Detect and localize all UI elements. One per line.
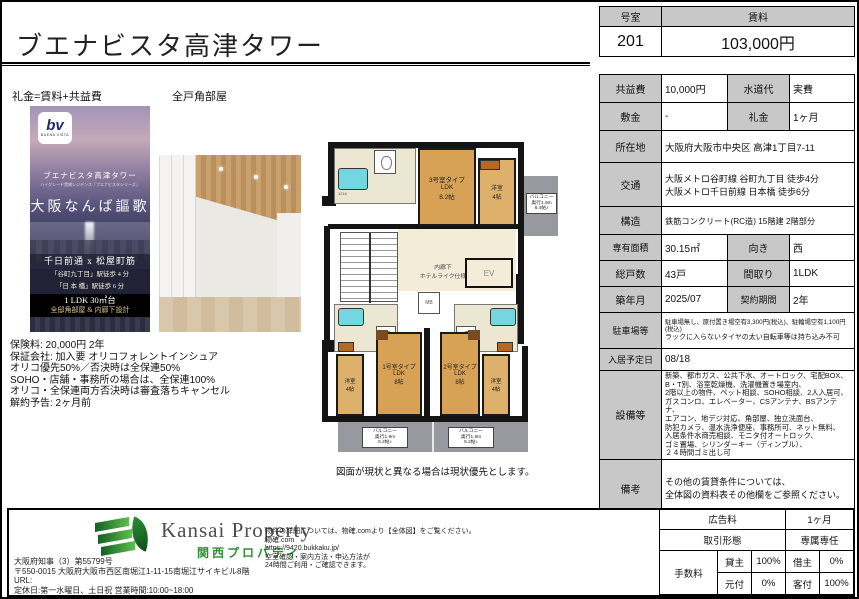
kozo-label: 構造: [600, 207, 662, 235]
poster-subtitle: ハイグレード賃貸レジデンス「ブエナビスタシリーズ」: [30, 182, 150, 188]
bukkaku-notice: 物件の詳細については、物確.comより【全体図】をご覧ください。 物確.com …: [265, 528, 515, 571]
notice-line: 24時間ご利用・ご確認できます。: [265, 562, 515, 571]
buena-vista-logo: bv BUENA VISTA: [38, 112, 72, 144]
listing-agent-value: 0%: [752, 573, 786, 595]
kotsu-label: 交通: [600, 163, 662, 207]
toilet-icon: [381, 156, 392, 170]
kyoekihi-value: 10,000円: [662, 75, 728, 103]
parking-line2: ラックに入らないタイヤの太い自転車等は持ち込み不可: [665, 334, 851, 342]
stair-divider: [369, 233, 371, 303]
rent-value: 103,000円: [662, 27, 855, 57]
wall: [322, 346, 328, 422]
terms-block: 保険料: 20,000円 2年 保証会社: 加入要 オリコフォレントインシュア …: [10, 340, 230, 409]
kosu-label: 総戸数: [600, 261, 662, 287]
rent-label: 賃料: [662, 7, 855, 27]
biko-line1: その他の賃貸条件については、: [665, 475, 851, 488]
muki-label: 向き: [728, 235, 790, 261]
floorplan-caption: 図面が現状と異なる場合は現状優先とします。: [336, 464, 535, 478]
wall: [522, 346, 528, 422]
lessor-value: 100%: [752, 551, 786, 573]
room-yoshitsu-right: 洋室 4帖: [482, 354, 510, 416]
ceiling-light: [219, 167, 223, 171]
property-flyer: ブエナビスタ高津タワー 号室 賃料 201 103,000円 礼金=賃料+共益費…: [0, 0, 859, 599]
terms-line: 解約予告: 2ヶ月前: [10, 398, 230, 410]
room-rent-table: 号室 賃料 201 103,000円: [599, 6, 855, 57]
bathtub-bottom-right: [490, 308, 516, 326]
terms-line: 保険料: 20,000円 2年: [10, 340, 230, 352]
terms-line: SOHO・店舗・事務所の場合は、全保連100%: [10, 375, 230, 387]
bv-logo-subtext: BUENA VISTA: [41, 133, 69, 137]
listing-agent-label: 元付: [718, 573, 752, 595]
kotsu-value: 大阪メトロ谷町線 谷町九丁目 徒歩4分 大阪メトロ千日前線 日本橋 徒歩6分: [662, 163, 855, 207]
lessor-label: 貸主: [718, 551, 752, 573]
keiyaku-label: 契約期間: [728, 287, 790, 313]
poster-access-text: 「谷町九丁目」駅徒歩 4 分 「日 本 橋」駅徒歩 6 分: [30, 269, 150, 294]
balcony-bottom: バルコニー 奥行1.9m 5.2帖♪ バルコニー 奥行1.9m 5.2帖♪: [338, 422, 528, 452]
entrance-door-right: [468, 330, 480, 340]
madori-label: 間取り: [728, 261, 790, 287]
nyukyo-label: 入居予定日: [600, 349, 662, 371]
reikin-note: 礼金=賃料+共益費: [12, 88, 102, 104]
entrance-door-left: [376, 330, 388, 340]
poster-streets-text: 千日前通 x 松屋町筋: [30, 254, 150, 269]
footer: Kansai Property 関西プロパティ 大阪府知事（3）第55799号 …: [7, 508, 855, 597]
meter-box: MB: [418, 292, 440, 314]
room-number-value: 201: [600, 27, 662, 57]
chikunengetsu-label: 築年月: [600, 287, 662, 313]
interior-photo: [159, 155, 301, 332]
nyukyo-value: 08/18: [662, 349, 855, 371]
terms-line: オリコ・全保連両方否決時は審査落ちキャンセル: [10, 386, 230, 398]
madori-value: 1LDK: [790, 261, 855, 287]
suidodai-label: 水道代: [728, 75, 790, 103]
suidodai-value: 実費: [790, 75, 855, 103]
parking-label: 駐車場等: [600, 313, 662, 349]
stairwell: [340, 232, 398, 302]
poster-building-name: ブエナビスタ高津タワー: [30, 170, 150, 181]
menseki-value: 30.15㎡: [662, 235, 728, 261]
bathtub-size-label: 1216: [338, 191, 347, 196]
closet-bottom-left: [338, 342, 354, 352]
lessee-value: 0%: [820, 551, 854, 573]
kotsu-line1: 大阪メトロ谷町線 谷町九丁目 徒歩4分: [665, 172, 851, 185]
ceiling-light: [284, 185, 288, 189]
bathtub-bottom-left: [338, 308, 364, 326]
kosu-value: 43戸: [662, 261, 728, 287]
kansai-property-logo: [95, 516, 155, 558]
shozaichi-value: 大阪府大阪市中央区 高津1丁目7-11: [662, 131, 855, 163]
poster-access-line2: 「日 本 橋」駅徒歩 6 分: [30, 281, 150, 293]
poster-spec-line1: 1 LDK 30㎡台: [30, 294, 150, 306]
shikikin-label: 敷金: [600, 103, 662, 131]
reikin-label: 礼金: [728, 103, 790, 131]
balcony-right: バルコニー 奥行1.9m 6.4帖♪: [524, 176, 558, 236]
poster-access-line1: 「谷町九丁目」駅徒歩 4 分: [30, 269, 150, 281]
room-number-label: 号室: [600, 7, 662, 27]
notice-line: https://9420.bukkaku.jp/: [265, 545, 515, 554]
kozo-value: 鉄筋コンクリート(RC造) 15階建 2階部分: [662, 207, 855, 235]
company-hours: 定休日:第一水曜日、土日祝 営業時間:10:00~18:00: [14, 586, 249, 596]
shikikin-value: -: [662, 103, 728, 131]
company-url: URL:: [14, 576, 249, 586]
setsubi-label: 設備等: [600, 371, 662, 460]
corner-room-note: 全戸角部屋: [172, 88, 227, 104]
room-unit3-ldk: 3号室タイプ LDK 8.2帖: [418, 148, 476, 226]
kyoekihi-label: 共益費: [600, 75, 662, 103]
setsubi-line: ２４時間ゴミ出し可: [665, 449, 851, 458]
setsubi-value: 新築、都市ガス、公共下水、オートロック、宅配BOX、 B・T別、浴室乾燥機、洗濯…: [662, 371, 855, 460]
parking-line1: 駐車場無し、原付置き場空有3,300円(税込)、駐輪場空有1,100円(税込): [665, 319, 851, 334]
photo-side-wall: [277, 213, 301, 297]
balcony-bottom2-label: バルコニー 奥行1.9m 5.2帖♪: [448, 427, 494, 448]
building-poster-image: bv BUENA VISTA ブエナビスタ高津タワー ハイグレード賃貸レジデンス…: [30, 106, 150, 332]
elevator: EV: [465, 258, 513, 288]
photo-wood-floor: [159, 297, 301, 332]
poster-spec-line2: 全邸角部屋 & 内廊下設計: [30, 306, 150, 315]
chikunengetsu-value: 2025/07: [662, 287, 728, 313]
parking-value: 駐車場無し、原付置き場空有3,300円(税込)、駐輪場空有1,100円(税込) …: [662, 313, 855, 349]
poster-catchcopy: 大阪なんば謳歌: [30, 196, 150, 216]
poster-bottom-skyline: [30, 317, 150, 332]
room-unit2-ldk: 2号室タイプ LDK 8帖: [440, 332, 480, 416]
setsubi-line: ガスコンロ、エレベーター、CSアンテナ、BSアンテナ、: [665, 398, 851, 415]
company-license: 大阪府知事（3）第55799号: [14, 557, 249, 567]
floor-plan: 1216 3号室タイプ LDK 8.2帖 洋室 4帖 バルコニー 奥行1.9m …: [312, 140, 562, 458]
bathtub-top: [338, 168, 368, 190]
wall: [324, 226, 330, 346]
logo-bar: [101, 541, 135, 556]
notice-line: 物確.com: [265, 537, 515, 546]
reikin-value: 1ヶ月: [790, 103, 855, 131]
ad-fee-value: 1ヶ月: [786, 509, 854, 530]
ceiling-light: [254, 175, 258, 179]
menseki-label: 専有面積: [600, 235, 662, 261]
deal-type-value: 専属専任: [786, 530, 854, 551]
biko-line2: 全体図の資料表その他欄をご参照ください。: [665, 488, 851, 501]
room-yoshitsu-left: 洋室 4帖: [336, 354, 364, 416]
tenant-agent-label: 客付: [786, 573, 820, 595]
closet-top: [480, 160, 500, 170]
commission-label: 手数料: [660, 551, 718, 595]
balcony-bottom1-label: バルコニー 奥行1.9m 5.2帖♪: [362, 427, 408, 448]
wall: [424, 328, 430, 422]
terms-line: 保証会社: 加入要 オリコフォレントインシュア: [10, 352, 230, 364]
terms-line: オリコ優先50%／否決時は全保連50%: [10, 363, 230, 375]
company-info: 大阪府知事（3）第55799号 〒550-0015 大阪府大阪市西区南堀江1-1…: [14, 557, 249, 595]
balcony-divider: [432, 422, 434, 452]
balcony-right-label: バルコニー 奥行1.9m 6.4帖♪: [526, 193, 557, 214]
room-unit1-ldk: 1号室タイプ LDK 8帖: [376, 332, 422, 416]
muki-value: 西: [790, 235, 855, 261]
tenant-agent-value: 100%: [820, 573, 854, 595]
lessee-label: 借主: [786, 551, 820, 573]
poster-specs-band: 1 LDK 30㎡台 全邸角部屋 & 内廊下設計: [30, 294, 150, 317]
page-title: ブエナビスタ高津タワー: [16, 26, 324, 63]
notice-line: 物件の詳細については、物確.comより【全体図】をご覧ください。: [265, 528, 515, 537]
deal-type-label: 取引形態: [660, 530, 786, 551]
keiyaku-value: 2年: [790, 287, 855, 313]
bv-logo-text: bv: [46, 119, 64, 133]
closet-bottom-right: [497, 342, 513, 352]
toilet-room-top: [374, 150, 396, 174]
ad-fee-label: 広告料: [660, 509, 786, 530]
photo-closet-doors: [159, 155, 196, 297]
fee-table: 広告料 1ヶ月 取引形態 専属専任 手数料 貸主 100% 借主 0% 元付 0…: [659, 508, 854, 595]
kotsu-line2: 大阪メトロ千日前線 日本橋 徒歩6分: [665, 185, 851, 198]
company-address: 〒550-0015 大阪府大阪市西区南堀江1-11-15南堀江サイキビル8階: [14, 567, 249, 577]
title-divider: [2, 62, 590, 66]
shozaichi-label: 所在地: [600, 131, 662, 163]
property-details-table: 共益費 10,000円 水道代 実費 敷金 - 礼金 1ヶ月 所在地 大阪府大阪…: [599, 74, 855, 518]
